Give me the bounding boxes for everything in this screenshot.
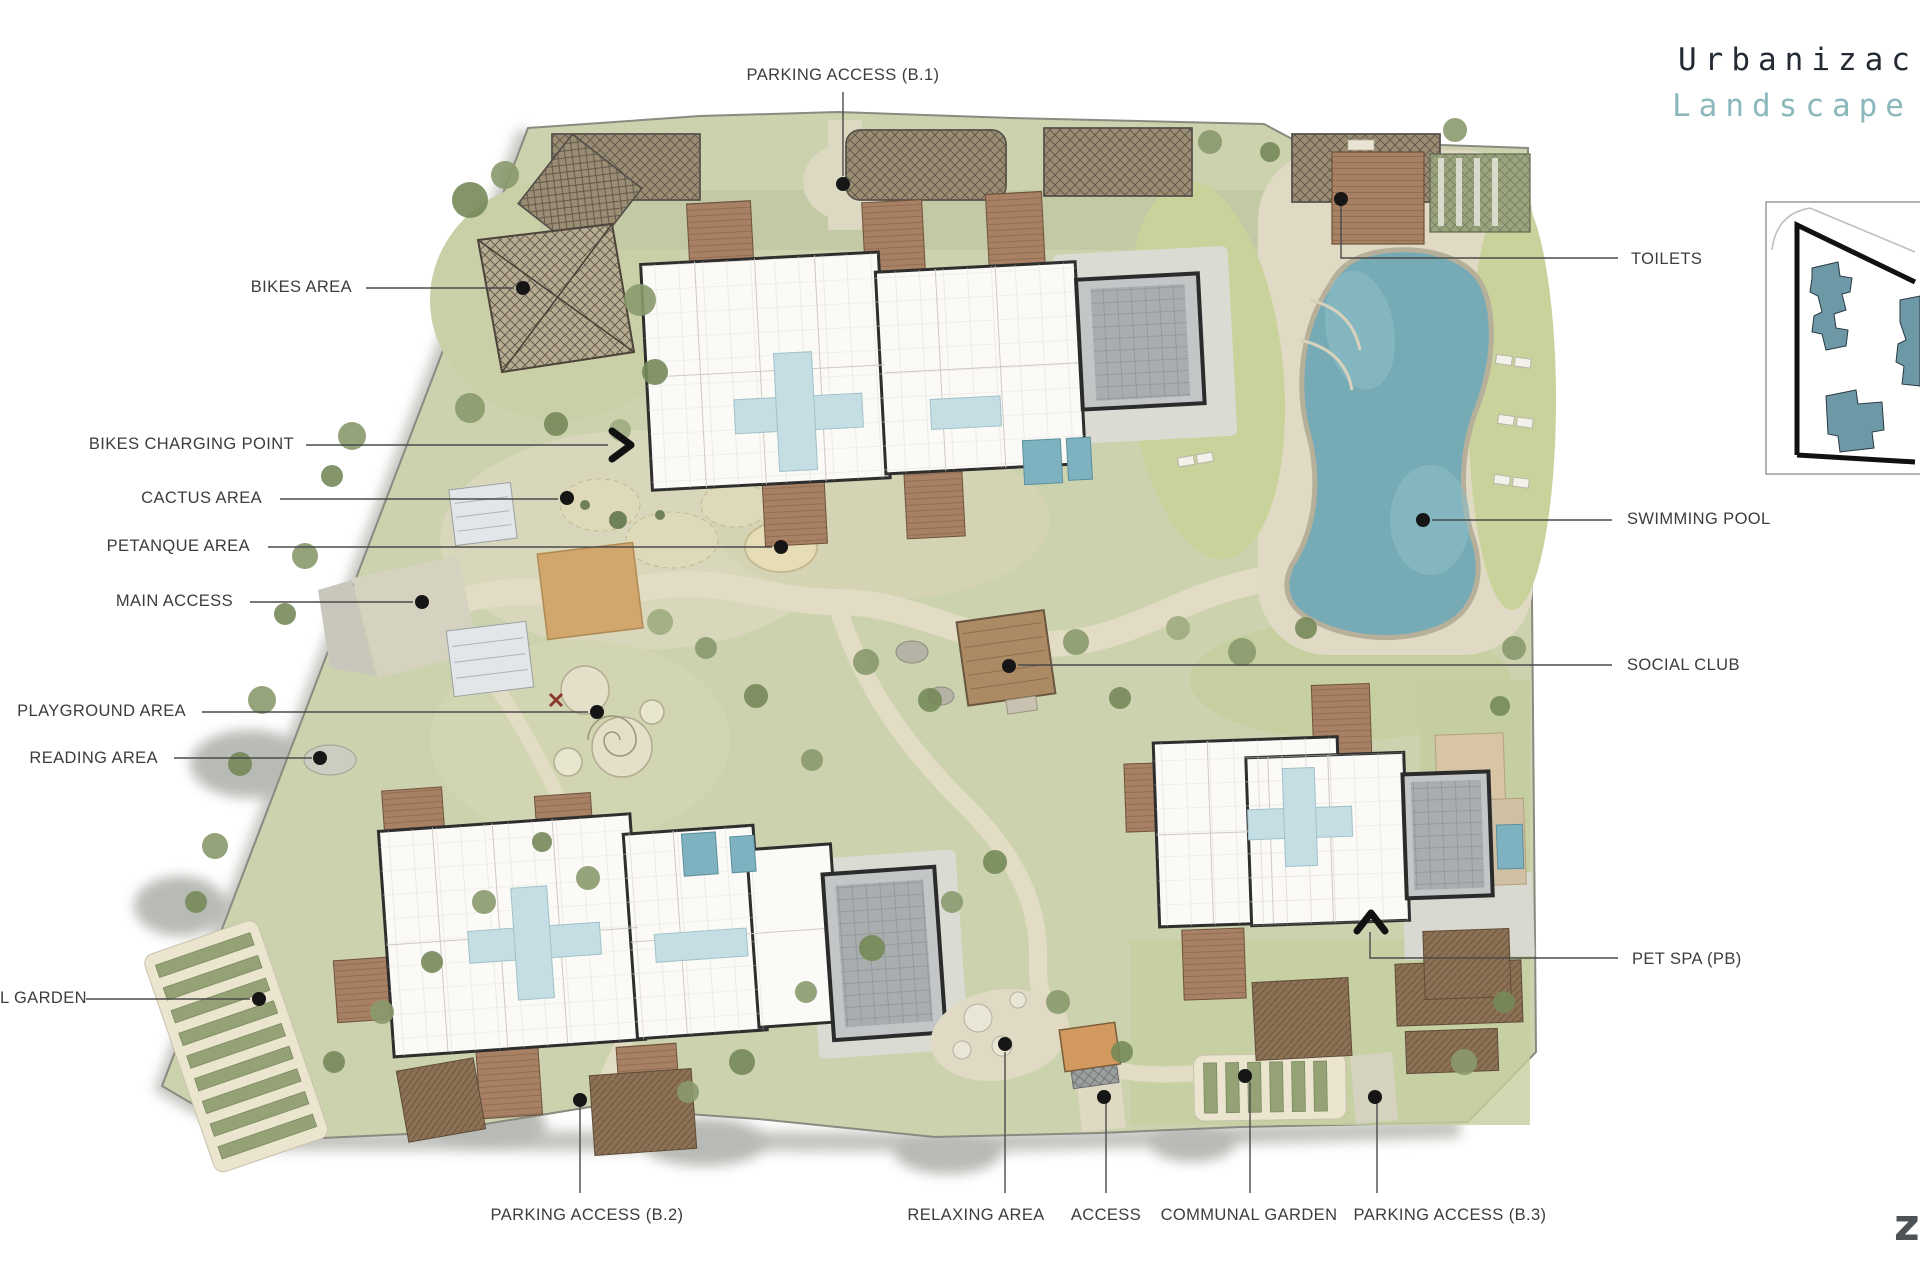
label-parking-access-b3: PARKING ACCESS (B.3) xyxy=(1354,1206,1547,1224)
project-title-line1: Urbanizac xyxy=(1678,42,1918,78)
label-bikes-charging-point: BIKES CHARGING POINT xyxy=(89,435,294,453)
label-playground-area: PLAYGROUND AREA xyxy=(17,702,186,720)
label-toilets: TOILETS xyxy=(1631,250,1702,268)
label-relaxing-area: RELAXING AREA xyxy=(907,1206,1044,1224)
label-main-access: MAIN ACCESS xyxy=(116,592,233,610)
reading-area-shape xyxy=(304,745,356,775)
label-pet-spa: PET SPA (PB) xyxy=(1632,950,1742,968)
site-plan-drawing xyxy=(0,0,1920,1280)
landscape-masterplan-sheet: PARKING ACCESS (B.1) BIKES AREA BIKES CH… xyxy=(0,0,1920,1280)
label-social-club: SOCIAL CLUB xyxy=(1627,656,1740,674)
main-access-canopy xyxy=(537,542,643,639)
label-cactus-area: CACTUS AREA xyxy=(141,489,262,507)
label-parking-access-b1: PARKING ACCESS (B.1) xyxy=(747,66,940,84)
communal-garden-bottom xyxy=(1193,1053,1346,1122)
logo-fragment: z xyxy=(1894,1200,1920,1251)
label-swimming-pool: SWIMMING POOL xyxy=(1627,510,1771,528)
label-parking-access-b2: PARKING ACCESS (B.2) xyxy=(491,1206,684,1224)
label-petanque-area: PETANQUE AREA xyxy=(107,537,250,555)
parking-b3-strip xyxy=(1350,1052,1398,1124)
label-reading-area: READING AREA xyxy=(29,749,158,767)
label-access: ACCESS xyxy=(1071,1206,1141,1224)
toilets-deck xyxy=(1332,152,1530,244)
label-bikes-area: BIKES AREA xyxy=(251,278,352,296)
project-title-line2: Landscape xyxy=(1672,88,1912,124)
label-garden-cut: L GARDEN xyxy=(0,989,87,1007)
label-communal-garden: COMMUNAL GARDEN xyxy=(1161,1206,1338,1224)
key-plan xyxy=(1766,202,1920,474)
boulder xyxy=(896,641,928,663)
bikes-area-shape xyxy=(478,224,634,372)
